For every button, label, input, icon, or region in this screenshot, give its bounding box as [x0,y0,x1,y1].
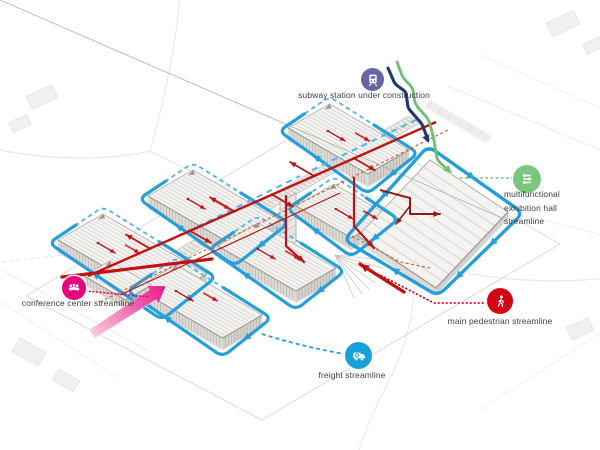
multifunctional-label: multifunctional exhibition hall streamli… [504,188,582,229]
conference-badge [62,276,86,300]
walking-person-icon [492,293,509,310]
diagram-stage: subway station under construction multif… [0,0,600,450]
freight-label: freight streamline [267,370,437,380]
train-icon [365,72,381,88]
conference-label: conference center streamline [0,298,156,308]
pedestrian-label: main pedestrian streamline [415,316,585,326]
sliders-icon [518,170,536,188]
subway-station-label: subway station under construction [279,90,449,100]
truck-icon [350,347,368,365]
freight-badge [345,342,372,369]
people-icon [66,280,82,296]
pedestrian-badge [487,288,513,314]
subway-station-badge [361,68,384,91]
